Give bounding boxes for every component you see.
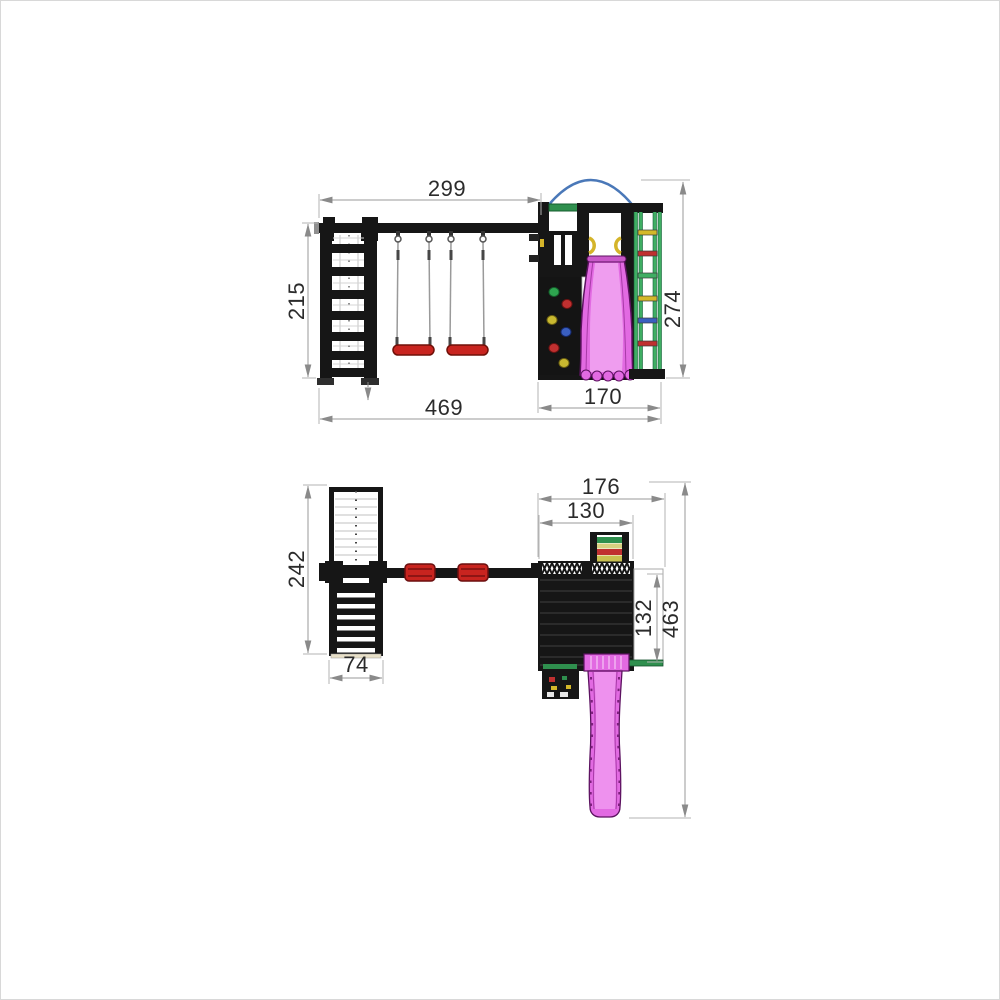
green-top-bar bbox=[549, 204, 579, 211]
ladder-stripe-olive bbox=[597, 556, 622, 562]
tower-front bbox=[529, 202, 665, 381]
swings-front bbox=[393, 231, 488, 355]
swing-seat-plan bbox=[405, 564, 435, 581]
slide-front bbox=[580, 256, 635, 381]
beam-stub bbox=[529, 255, 539, 262]
dim-overall-depth: 463 bbox=[658, 600, 683, 638]
dim-overall-width: 469 bbox=[425, 395, 463, 420]
aframe-foot bbox=[317, 378, 334, 385]
aframe-front bbox=[317, 217, 379, 400]
playset-dimension-drawing: 299 215 274 170 469 bbox=[1, 1, 999, 999]
climbing-wall-plan bbox=[542, 664, 579, 699]
aframe-rungs bbox=[331, 244, 365, 377]
dim-beam-span: 299 bbox=[428, 176, 466, 201]
swing-seat bbox=[447, 345, 488, 355]
slide-foot-scallops bbox=[581, 370, 635, 381]
railing bbox=[549, 231, 577, 269]
aframe-left-post bbox=[320, 233, 332, 378]
technical-drawing-page: 299 215 274 170 469 bbox=[0, 0, 1000, 1000]
dim-tower-width: 170 bbox=[584, 384, 622, 409]
aframe-plan bbox=[319, 487, 387, 658]
aframe-back-rails bbox=[333, 238, 364, 364]
yellow-hook bbox=[589, 238, 594, 253]
platform-bar bbox=[538, 267, 591, 277]
yellow-hook bbox=[616, 238, 621, 253]
dim-aframe-width: 74 bbox=[343, 652, 368, 677]
climbing-wall bbox=[539, 277, 582, 375]
ladder-stripe-yellow bbox=[597, 544, 622, 549]
ladder-stripe-red bbox=[597, 549, 622, 555]
dim-tower-overall-width: 176 bbox=[582, 474, 620, 499]
front-view: 299 215 274 170 469 bbox=[284, 176, 690, 424]
beam-end-block bbox=[319, 563, 331, 581]
dim-tower-width-plan: 130 bbox=[567, 498, 605, 523]
ladder-plan bbox=[590, 532, 629, 563]
beam-end-cap bbox=[314, 222, 319, 234]
ladder-stripe-green bbox=[597, 537, 622, 543]
swing-seat-plan bbox=[458, 564, 488, 581]
dim-platform-depth: 132 bbox=[631, 599, 656, 637]
tower-plan bbox=[531, 532, 663, 817]
rope-adjusters bbox=[396, 250, 486, 346]
beam-stub-plan bbox=[531, 563, 539, 575]
slide-plan bbox=[584, 654, 629, 817]
yellow-fitting bbox=[540, 239, 544, 247]
swing-seat bbox=[393, 345, 434, 355]
plan-view: 176 130 242 74 132 463 bbox=[284, 474, 691, 818]
beam-stub bbox=[529, 234, 539, 241]
green-edge-strip bbox=[628, 660, 663, 666]
dim-tower-height: 274 bbox=[660, 290, 685, 328]
aframe-right-post bbox=[364, 233, 377, 378]
beam-plan bbox=[383, 564, 539, 581]
dim-aframe-height: 215 bbox=[284, 282, 309, 320]
aframe-foot bbox=[361, 378, 379, 385]
dim-aframe-length: 242 bbox=[284, 550, 309, 588]
swing-ropes bbox=[397, 241, 484, 345]
